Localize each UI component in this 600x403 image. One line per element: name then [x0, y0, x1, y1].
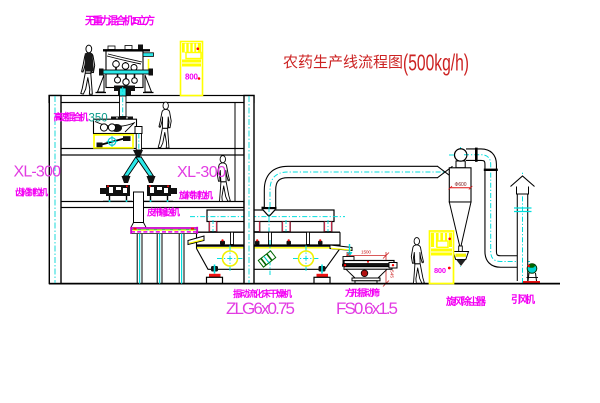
svg-text:FS0.6x1.5: FS0.6x1.5 — [336, 299, 398, 318]
svg-text:旋风除尘器: 旋风除尘器 — [445, 295, 487, 308]
svg-text:振动流化床干燥机: 振动流化床干燥机 — [233, 288, 292, 299]
svg-text:545: 545 — [389, 270, 395, 278]
svg-text:皮带输送机: 皮带输送机 — [146, 207, 180, 218]
svg-text:方形振动筛: 方形振动筛 — [345, 287, 380, 298]
svg-text:农药生产线流程图: 农药生产线流程图 — [283, 54, 403, 71]
svg-text:高速混合机: 高速混合机 — [54, 112, 89, 124]
svg-text:350: 350 — [89, 113, 108, 125]
svg-text:800: 800 — [185, 73, 199, 82]
svg-text:旋转制粒机: 旋转制粒机 — [178, 190, 213, 201]
svg-text:无重力混合机1.5 立方: 无重力混合机1.5 立方 — [84, 14, 156, 27]
svg-text:XL-300: XL-300 — [14, 164, 62, 181]
svg-text:ZLG6x0.75: ZLG6x0.75 — [226, 299, 295, 318]
svg-text:XL-300: XL-300 — [177, 164, 226, 181]
svg-text:800: 800 — [434, 266, 446, 275]
svg-text:Φ600: Φ600 — [455, 182, 467, 188]
svg-text:(500kg/h): (500kg/h) — [403, 50, 469, 76]
svg-text:引风机: 引风机 — [511, 293, 535, 306]
svg-text:1500: 1500 — [361, 250, 371, 256]
svg-text:齿轮制粒机: 齿轮制粒机 — [15, 187, 48, 198]
